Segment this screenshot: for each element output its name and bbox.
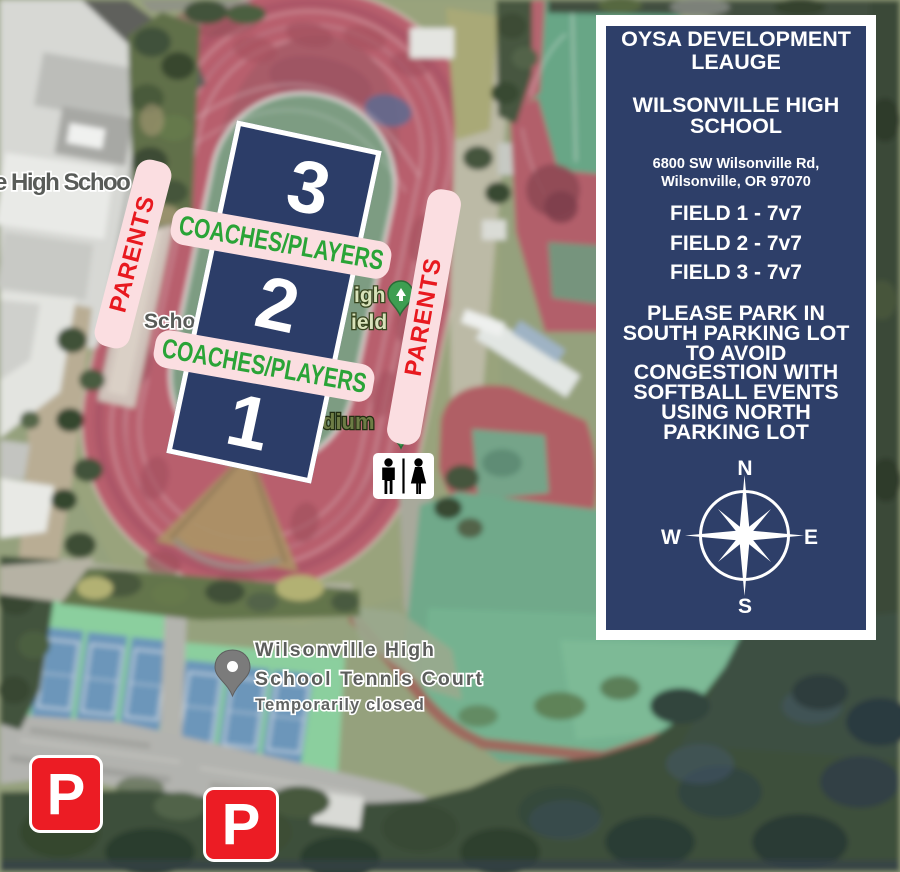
svg-text:e High Schoo: e High Schoo <box>0 169 130 196</box>
svg-text:Temporarily closed: Temporarily closed <box>255 696 425 714</box>
svg-text:ield: ield <box>351 311 387 334</box>
svg-text:igh: igh <box>354 284 386 307</box>
svg-text:dium: dium <box>322 409 375 434</box>
svg-text:School Tennis Court: School Tennis Court <box>255 668 484 690</box>
svg-text:Wilsonville High: Wilsonville High <box>255 639 436 661</box>
